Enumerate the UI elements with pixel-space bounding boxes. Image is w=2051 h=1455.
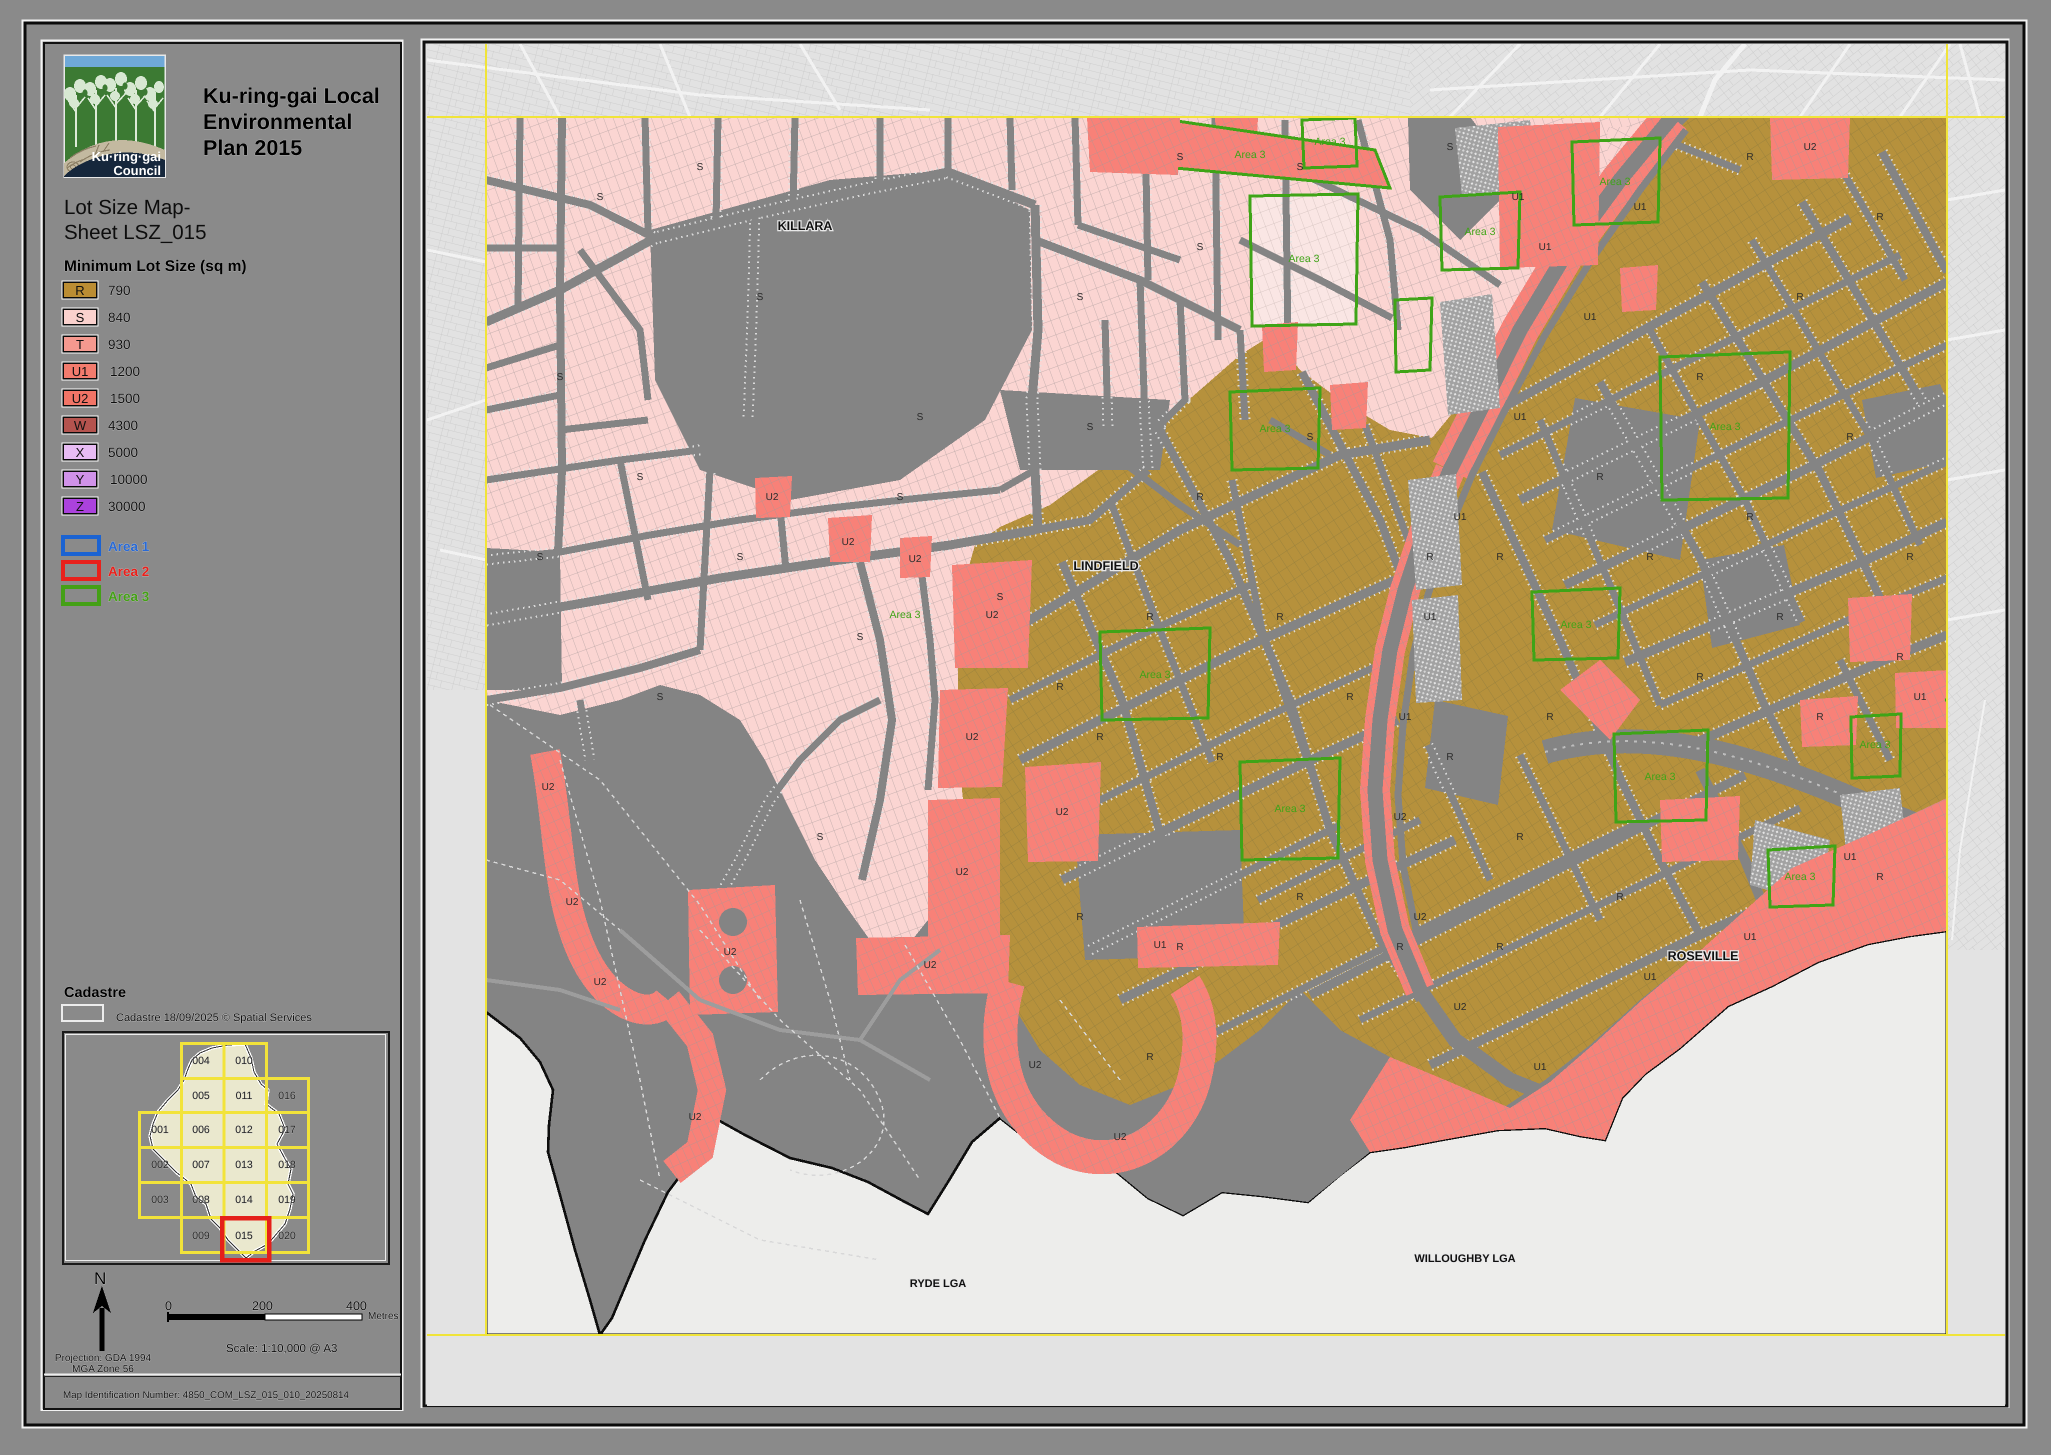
svg-text:010: 010 (235, 1055, 253, 1067)
svg-text:U1: U1 (1644, 972, 1657, 983)
svg-text:U2: U2 (1804, 142, 1817, 153)
svg-text:S: S (557, 372, 564, 383)
svg-text:Y: Y (76, 472, 85, 487)
svg-text:U2: U2 (909, 554, 922, 565)
svg-text:R: R (1496, 942, 1503, 953)
svg-text:Area 3: Area 3 (108, 589, 150, 604)
svg-text:Area 3: Area 3 (890, 609, 921, 621)
svg-text:Area 3: Area 3 (1289, 253, 1320, 265)
svg-text:U1: U1 (1534, 1062, 1547, 1073)
svg-text:S: S (637, 472, 644, 483)
svg-text:Projection: GDA 1994: Projection: GDA 1994 (55, 1353, 152, 1364)
svg-text:R: R (1616, 892, 1623, 903)
svg-text:Area 2: Area 2 (108, 564, 149, 579)
svg-text:U2: U2 (1394, 812, 1407, 823)
svg-text:U1: U1 (1454, 512, 1467, 523)
svg-text:R: R (1516, 832, 1523, 843)
svg-text:020: 020 (278, 1230, 296, 1242)
svg-text:R: R (1296, 892, 1303, 903)
svg-text:S: S (917, 412, 924, 423)
svg-text:R: R (1056, 682, 1063, 693)
svg-text:014: 014 (235, 1194, 253, 1206)
svg-text:MGA Zone 56: MGA Zone 56 (72, 1364, 134, 1375)
svg-text:011: 011 (236, 1090, 253, 1102)
svg-text:U1: U1 (1844, 852, 1857, 863)
svg-text:Area 3: Area 3 (1235, 149, 1266, 161)
svg-text:Area 3: Area 3 (1315, 136, 1346, 148)
svg-text:U2: U2 (842, 537, 855, 548)
svg-text:WILLOUGHBY LGA: WILLOUGHBY LGA (1414, 1253, 1515, 1265)
svg-text:930: 930 (108, 337, 131, 352)
svg-text:LINDFIELD: LINDFIELD (1073, 559, 1138, 573)
svg-text:Lot Size Map-: Lot Size Map- (64, 196, 190, 219)
svg-text:R: R (1146, 1052, 1153, 1063)
svg-text:S: S (737, 552, 744, 563)
svg-text:R: R (1446, 752, 1453, 763)
svg-text:R: R (1346, 692, 1353, 703)
svg-text:840: 840 (108, 310, 131, 325)
svg-text:U2: U2 (1056, 807, 1069, 818)
svg-text:30000: 30000 (108, 499, 146, 514)
svg-text:X: X (76, 445, 85, 460)
svg-text:U2: U2 (1114, 1132, 1127, 1143)
svg-text:S: S (757, 292, 764, 303)
svg-text:U1: U1 (1514, 412, 1527, 423)
svg-text:R: R (1846, 432, 1853, 443)
svg-text:U1: U1 (1634, 202, 1647, 213)
svg-text:U2: U2 (542, 782, 555, 793)
svg-text:S: S (597, 192, 604, 203)
svg-text:018: 018 (278, 1159, 296, 1171)
svg-text:U2: U2 (986, 610, 999, 621)
svg-text:S: S (1077, 292, 1084, 303)
svg-text:S: S (817, 832, 824, 843)
svg-text:R: R (1906, 552, 1913, 563)
svg-text:400: 400 (346, 1299, 367, 1313)
svg-text:U2: U2 (72, 391, 89, 406)
svg-text:017: 017 (278, 1124, 296, 1136)
svg-text:R: R (1876, 212, 1883, 223)
svg-text:R: R (1096, 732, 1103, 743)
svg-text:013: 013 (235, 1159, 253, 1171)
svg-text:U1: U1 (1512, 192, 1525, 203)
svg-text:008: 008 (192, 1194, 210, 1206)
svg-text:S: S (1087, 422, 1094, 433)
svg-text:ROSEVILLE: ROSEVILLE (1668, 949, 1739, 963)
svg-text:U2: U2 (689, 1112, 702, 1123)
svg-text:U1: U1 (1154, 940, 1167, 951)
svg-text:U2: U2 (566, 897, 579, 908)
svg-text:S: S (857, 632, 864, 643)
svg-text:Area 3: Area 3 (1275, 803, 1306, 815)
svg-text:Cadastre: Cadastre (64, 985, 126, 1001)
svg-text:003: 003 (151, 1194, 169, 1206)
svg-text:Cadastre 18/09/2025 © Spatial: Cadastre 18/09/2025 © Spatial Services (116, 1012, 312, 1024)
svg-text:Sheet LSZ_015: Sheet LSZ_015 (64, 221, 206, 244)
svg-text:1200: 1200 (110, 364, 140, 379)
svg-text:S: S (537, 552, 544, 563)
svg-text:R: R (1396, 942, 1403, 953)
svg-text:R: R (1646, 552, 1653, 563)
svg-text:009: 009 (192, 1230, 210, 1242)
svg-text:Environmental: Environmental (203, 110, 352, 134)
svg-text:004: 004 (192, 1055, 210, 1067)
svg-text:012: 012 (235, 1124, 253, 1136)
svg-text:Area 3: Area 3 (1785, 871, 1816, 883)
svg-text:016: 016 (278, 1090, 296, 1102)
svg-text:U2: U2 (956, 867, 969, 878)
svg-text:S: S (76, 310, 85, 325)
svg-text:015: 015 (235, 1230, 253, 1242)
svg-text:Area 3: Area 3 (1561, 619, 1592, 631)
svg-text:U2: U2 (966, 732, 979, 743)
svg-text:Z: Z (76, 499, 84, 514)
svg-text:Area 3: Area 3 (1645, 771, 1676, 783)
svg-text:Area 3: Area 3 (1710, 421, 1741, 433)
svg-text:R: R (1796, 292, 1803, 303)
svg-text:007: 007 (192, 1159, 210, 1171)
svg-text:Area 3: Area 3 (1260, 423, 1291, 435)
svg-text:019: 019 (278, 1194, 296, 1206)
svg-text:U2: U2 (1029, 1060, 1042, 1071)
svg-text:006: 006 (192, 1124, 210, 1136)
svg-text:S: S (1447, 142, 1454, 153)
svg-text:S: S (1307, 432, 1314, 443)
svg-text:Metres: Metres (368, 1311, 399, 1322)
svg-text:R: R (1176, 942, 1183, 953)
svg-text:R: R (75, 283, 84, 298)
svg-text:S: S (657, 692, 664, 703)
svg-text:R: R (1896, 652, 1903, 663)
svg-text:R: R (1696, 372, 1703, 383)
svg-text:S: S (1197, 242, 1204, 253)
svg-text:R: R (1496, 552, 1503, 563)
svg-text:R: R (1546, 712, 1553, 723)
svg-text:200: 200 (252, 1299, 273, 1313)
svg-text:R: R (1776, 612, 1783, 623)
svg-text:10000: 10000 (110, 472, 148, 487)
svg-text:U1: U1 (1584, 312, 1597, 323)
svg-text:Area 3: Area 3 (1600, 176, 1631, 188)
svg-text:R: R (1216, 752, 1223, 763)
svg-text:Area 3: Area 3 (1860, 739, 1891, 751)
svg-text:S: S (897, 492, 904, 503)
svg-text:S: S (697, 162, 704, 173)
svg-text:U1: U1 (1744, 932, 1757, 943)
svg-text:U2: U2 (594, 977, 607, 988)
svg-text:002: 002 (151, 1159, 169, 1171)
svg-text:U1: U1 (72, 364, 89, 379)
svg-text:005: 005 (192, 1090, 210, 1102)
svg-text:U2: U2 (766, 492, 779, 503)
svg-text:S: S (1297, 162, 1304, 173)
svg-text:RYDE LGA: RYDE LGA (910, 1278, 966, 1290)
svg-text:KILLARA: KILLARA (778, 219, 833, 233)
svg-text:Council: Council (113, 163, 161, 178)
svg-text:Area 3: Area 3 (1140, 669, 1171, 681)
svg-text:U2: U2 (724, 947, 737, 958)
svg-text:U1: U1 (1914, 692, 1927, 703)
svg-text:5000: 5000 (108, 445, 138, 460)
svg-text:001: 001 (151, 1124, 169, 1136)
svg-text:U2: U2 (1414, 912, 1427, 923)
svg-text:U2: U2 (924, 960, 937, 971)
svg-text:R: R (1816, 712, 1823, 723)
svg-text:R: R (1426, 552, 1433, 563)
svg-text:Area 3: Area 3 (1465, 226, 1496, 238)
svg-text:S: S (1177, 152, 1184, 163)
svg-text:R: R (1746, 512, 1753, 523)
svg-text:R: R (1146, 612, 1153, 623)
svg-text:Ku·ring·gai: Ku·ring·gai (92, 149, 161, 164)
svg-text:S: S (997, 592, 1004, 603)
svg-text:U2: U2 (1454, 1002, 1467, 1013)
svg-text:Map Identification Number: 485: Map Identification Number: 4850_COM_LSZ_… (63, 1390, 349, 1401)
svg-text:R: R (1196, 492, 1203, 503)
svg-text:Plan 2015: Plan 2015 (203, 136, 302, 160)
svg-text:4300: 4300 (108, 418, 138, 433)
svg-text:Scale: 1:10,000 @ A3: Scale: 1:10,000 @ A3 (226, 1343, 337, 1355)
svg-text:R: R (1596, 472, 1603, 483)
svg-text:0: 0 (165, 1299, 172, 1313)
svg-text:R: R (1276, 612, 1283, 623)
svg-text:Ku-ring-gai Local: Ku-ring-gai Local (203, 84, 380, 108)
svg-text:R: R (1876, 872, 1883, 883)
svg-text:U1: U1 (1539, 242, 1552, 253)
svg-text:U1: U1 (1399, 712, 1412, 723)
svg-text:W: W (74, 418, 87, 433)
svg-text:R: R (1696, 672, 1703, 683)
svg-text:R: R (1746, 152, 1753, 163)
svg-text:790: 790 (108, 283, 131, 298)
svg-text:U1: U1 (1424, 612, 1437, 623)
svg-text:T: T (76, 337, 84, 352)
svg-text:R: R (1076, 912, 1083, 923)
svg-text:N: N (94, 1269, 106, 1288)
svg-text:Minimum Lot Size (sq m): Minimum Lot Size (sq m) (64, 258, 247, 275)
svg-text:1500: 1500 (110, 391, 140, 406)
svg-text:Area 1: Area 1 (108, 539, 150, 554)
